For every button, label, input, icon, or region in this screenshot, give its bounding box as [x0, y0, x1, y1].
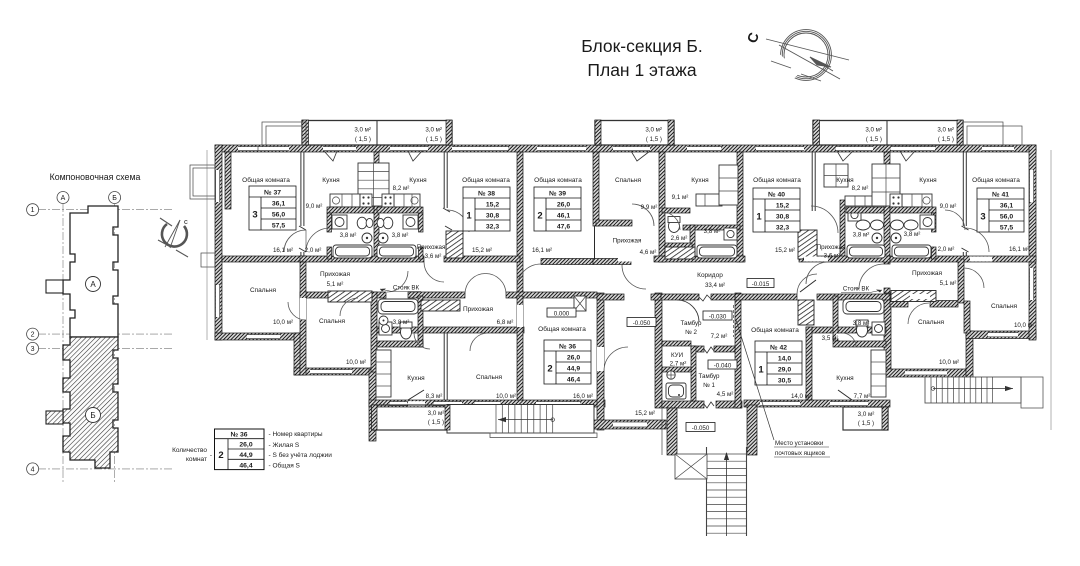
svg-text:План 1 этажа: План 1 этажа — [587, 60, 696, 80]
svg-text:57,5: 57,5 — [1000, 225, 1013, 232]
svg-text:Общая комната: Общая комната — [534, 176, 582, 184]
svg-text:2,7 м²: 2,7 м² — [670, 361, 687, 368]
svg-text:3,8 м²: 3,8 м² — [853, 232, 870, 239]
svg-text:3: 3 — [980, 212, 985, 223]
svg-text:№ 2: № 2 — [685, 329, 697, 336]
svg-text:№ 42: № 42 — [770, 345, 787, 352]
svg-text:16,1 м²: 16,1 м² — [532, 247, 552, 254]
svg-text:3,8 м²: 3,8 м² — [853, 320, 870, 327]
svg-text:- S без учёта лоджии: - S без учёта лоджии — [269, 451, 333, 459]
svg-text:3,5 м²: 3,5 м² — [822, 335, 839, 342]
svg-text:14,0 м²: 14,0 м² — [791, 393, 811, 400]
svg-text:16,1 м²: 16,1 м² — [273, 247, 293, 254]
svg-text:26,0: 26,0 — [567, 355, 580, 362]
svg-text:Прихожая: Прихожая — [613, 238, 642, 245]
svg-text:-0.040: -0.040 — [714, 362, 732, 369]
svg-text:8,2 м²: 8,2 м² — [393, 185, 410, 192]
svg-text:Спальня: Спальня — [250, 287, 277, 294]
svg-text:15,2 м²: 15,2 м² — [635, 410, 655, 417]
svg-text:3,8 м²: 3,8 м² — [392, 232, 409, 239]
svg-text:15,2: 15,2 — [776, 203, 789, 210]
svg-text:15,2 м²: 15,2 м² — [775, 247, 795, 254]
svg-text:Стояк ВК: Стояк ВК — [843, 286, 870, 293]
svg-text:3: 3 — [252, 210, 257, 221]
svg-text:Компоновочная схема: Компоновочная схема — [50, 172, 141, 182]
svg-text:46,4: 46,4 — [567, 377, 580, 384]
svg-text:30,5: 30,5 — [778, 378, 791, 385]
svg-text:Спальня: Спальня — [615, 177, 642, 184]
svg-text:-0.030: -0.030 — [709, 313, 727, 320]
svg-text:( 1,5 ): ( 1,5 ) — [858, 420, 874, 427]
svg-text:32,3: 32,3 — [776, 225, 789, 232]
svg-text:2: 2 — [547, 364, 552, 375]
svg-text:9,9 м²: 9,9 м² — [641, 204, 658, 211]
svg-text:Общая комната: Общая комната — [972, 176, 1020, 184]
svg-text:1: 1 — [31, 207, 35, 214]
svg-text:Кухня: Кухня — [409, 177, 427, 184]
svg-text:Спальня: Спальня — [319, 318, 346, 325]
svg-text:5,1 м²: 5,1 м² — [327, 281, 344, 288]
svg-text:Прихожая: Прихожая — [417, 244, 446, 251]
svg-text:( 1,5 ): ( 1,5 ) — [866, 136, 882, 143]
svg-text:Стояк ВК: Стояк ВК — [393, 285, 420, 292]
svg-text:14,0: 14,0 — [778, 356, 791, 363]
svg-text:№ 37: № 37 — [264, 190, 281, 197]
svg-text:КУИ: КУИ — [671, 352, 683, 359]
svg-text:15,2: 15,2 — [486, 202, 499, 209]
svg-text:3,6 м²: 3,6 м² — [824, 253, 841, 260]
svg-text:47,6: 47,6 — [557, 224, 570, 231]
svg-text:2,0 м²: 2,0 м² — [305, 247, 322, 254]
svg-text:Прихожая: Прихожая — [912, 270, 943, 277]
svg-text:- Жилая S: - Жилая S — [269, 442, 300, 449]
svg-text:36,1: 36,1 — [1000, 203, 1013, 210]
svg-text:№ 40: № 40 — [768, 192, 785, 199]
svg-text:3,0 м²: 3,0 м² — [645, 127, 662, 134]
svg-text:№ 36: № 36 — [559, 344, 576, 351]
svg-text:10,0 м²: 10,0 м² — [496, 393, 516, 400]
svg-text:32,3: 32,3 — [486, 224, 499, 231]
svg-text:16,0 м²: 16,0 м² — [573, 393, 593, 400]
svg-text:Тамбур: Тамбур — [699, 373, 721, 380]
svg-text:( 1,5 ): ( 1,5 ) — [426, 136, 442, 143]
svg-text:Б: Б — [90, 411, 95, 420]
svg-text:26,0: 26,0 — [239, 442, 252, 449]
svg-text:4: 4 — [31, 466, 35, 473]
svg-text:3,0 м²: 3,0 м² — [428, 410, 445, 417]
svg-text:57,5: 57,5 — [272, 223, 285, 230]
svg-text:46,4: 46,4 — [239, 462, 252, 469]
svg-text:( 1,5 ): ( 1,5 ) — [938, 136, 954, 143]
svg-text:1: 1 — [758, 365, 764, 376]
svg-text:10,0 м²: 10,0 м² — [939, 359, 959, 366]
svg-text:( 1,5 ): ( 1,5 ) — [355, 136, 371, 143]
svg-text:Количество: Количество — [172, 447, 207, 454]
svg-text:3,0 м²: 3,0 м² — [425, 127, 442, 134]
svg-text:9,1 м²: 9,1 м² — [672, 194, 689, 201]
svg-text:Кухня: Кухня — [919, 177, 937, 184]
svg-text:-0.050: -0.050 — [692, 425, 710, 432]
svg-text:1: 1 — [466, 211, 472, 222]
svg-text:4,6 м²: 4,6 м² — [640, 249, 657, 256]
svg-text:Общая комната: Общая комната — [751, 326, 799, 334]
svg-text:3,0 м²: 3,0 м² — [354, 127, 371, 134]
svg-text:Б: Б — [112, 195, 117, 202]
svg-text:5,1 м²: 5,1 м² — [940, 280, 957, 287]
svg-text:Прихожая: Прихожая — [320, 271, 351, 278]
svg-text:с: с — [184, 217, 188, 226]
svg-text:Место установки: Место установки — [775, 440, 824, 447]
svg-text:16,1 м²: 16,1 м² — [1009, 246, 1029, 253]
svg-text:Кухня: Кухня — [322, 177, 340, 184]
svg-text:А: А — [61, 195, 66, 202]
svg-text:3,8 м²: 3,8 м² — [904, 231, 921, 238]
svg-text:6,8 м²: 6,8 м² — [497, 319, 514, 326]
svg-text:29,0: 29,0 — [778, 367, 791, 374]
svg-text:10,0 м²: 10,0 м² — [273, 319, 293, 326]
svg-text:- Номер квартиры: - Номер квартиры — [269, 431, 323, 438]
svg-text:№ 1: № 1 — [703, 382, 715, 389]
svg-text:3,8 м²: 3,8 м² — [340, 232, 357, 239]
svg-text:Кухня: Кухня — [836, 375, 854, 382]
svg-text:44,9: 44,9 — [567, 366, 580, 373]
svg-text:Тамбур: Тамбур — [681, 320, 703, 327]
svg-text:А: А — [90, 280, 96, 289]
svg-text:Кухня: Кухня — [691, 177, 709, 184]
svg-text:3: 3 — [31, 346, 35, 353]
svg-text:2: 2 — [537, 211, 542, 222]
svg-text:Спальня: Спальня — [991, 303, 1018, 310]
svg-text:3,0 м²: 3,0 м² — [937, 127, 954, 134]
svg-text:-0.050: -0.050 — [633, 320, 651, 327]
svg-text:8,3 м²: 8,3 м² — [426, 393, 443, 400]
svg-text:46,1: 46,1 — [557, 213, 570, 220]
svg-text:2: 2 — [218, 450, 223, 461]
svg-text:15,2 м²: 15,2 м² — [472, 247, 492, 254]
svg-text:( 1,5 ): ( 1,5 ) — [428, 419, 444, 426]
svg-text:44,9: 44,9 — [239, 452, 252, 459]
svg-text:Коридор: Коридор — [697, 272, 723, 279]
svg-text:Спальня: Спальня — [476, 374, 503, 381]
svg-text:3,8 м²: 3,8 м² — [393, 319, 410, 326]
svg-text:Кухня: Кухня — [836, 177, 854, 184]
svg-text:Прихожая: Прихожая — [817, 244, 846, 251]
svg-text:3,6 м²: 3,6 м² — [425, 253, 442, 260]
svg-text:2,0 м²: 2,0 м² — [938, 246, 955, 253]
svg-text:№ 38: № 38 — [478, 191, 495, 198]
svg-text:почтовых ящиков: почтовых ящиков — [775, 450, 826, 457]
svg-text:Блок-секция Б.: Блок-секция Б. — [581, 36, 703, 56]
svg-text:36,1: 36,1 — [272, 201, 285, 208]
svg-text:26,0: 26,0 — [557, 202, 570, 209]
svg-text:2: 2 — [31, 332, 35, 339]
svg-text:3,8 м²: 3,8 м² — [704, 228, 721, 235]
svg-text:Общая комната: Общая комната — [538, 325, 586, 333]
svg-text:-: - — [210, 452, 212, 459]
svg-text:№ 39: № 39 — [549, 191, 566, 198]
svg-text:30,8: 30,8 — [776, 214, 789, 221]
svg-text:3,0 м²: 3,0 м² — [865, 127, 882, 134]
svg-text:- Общая S: - Общая S — [269, 462, 301, 470]
svg-text:9,0 м²: 9,0 м² — [306, 203, 323, 210]
svg-text:10,0 м²: 10,0 м² — [1014, 322, 1034, 329]
svg-text:№ 41: № 41 — [992, 192, 1009, 199]
svg-text:Спальня: Спальня — [918, 319, 945, 326]
svg-text:№ 36: № 36 — [230, 432, 247, 439]
svg-text:7,2 м²: 7,2 м² — [711, 333, 728, 340]
svg-text:9,0 м²: 9,0 м² — [940, 203, 957, 210]
svg-text:Кухня: Кухня — [407, 375, 425, 382]
svg-text:Общая комната: Общая комната — [242, 176, 290, 184]
svg-text:Общая комната: Общая комната — [753, 176, 801, 184]
svg-text:3,0 м²: 3,0 м² — [858, 411, 875, 418]
svg-text:0.000: 0.000 — [554, 310, 570, 317]
svg-text:( 1,5 ): ( 1,5 ) — [646, 136, 662, 143]
svg-text:8,2 м²: 8,2 м² — [852, 185, 869, 192]
svg-text:Прихожая: Прихожая — [463, 306, 494, 313]
svg-text:7,7 м²: 7,7 м² — [854, 393, 871, 400]
svg-text:Общая комната: Общая комната — [462, 176, 510, 184]
svg-text:56,0: 56,0 — [272, 212, 285, 219]
svg-text:-0.015: -0.015 — [752, 281, 770, 288]
svg-text:2,6 м²: 2,6 м² — [671, 235, 688, 242]
svg-text:33,4 м²: 33,4 м² — [705, 282, 725, 289]
svg-text:56,0: 56,0 — [1000, 214, 1013, 221]
svg-text:1: 1 — [756, 212, 762, 223]
svg-text:10,0 м²: 10,0 м² — [346, 359, 366, 366]
svg-text:комнат: комнат — [186, 456, 207, 463]
svg-text:30,8: 30,8 — [486, 213, 499, 220]
svg-text:4,5 м²: 4,5 м² — [717, 391, 734, 398]
